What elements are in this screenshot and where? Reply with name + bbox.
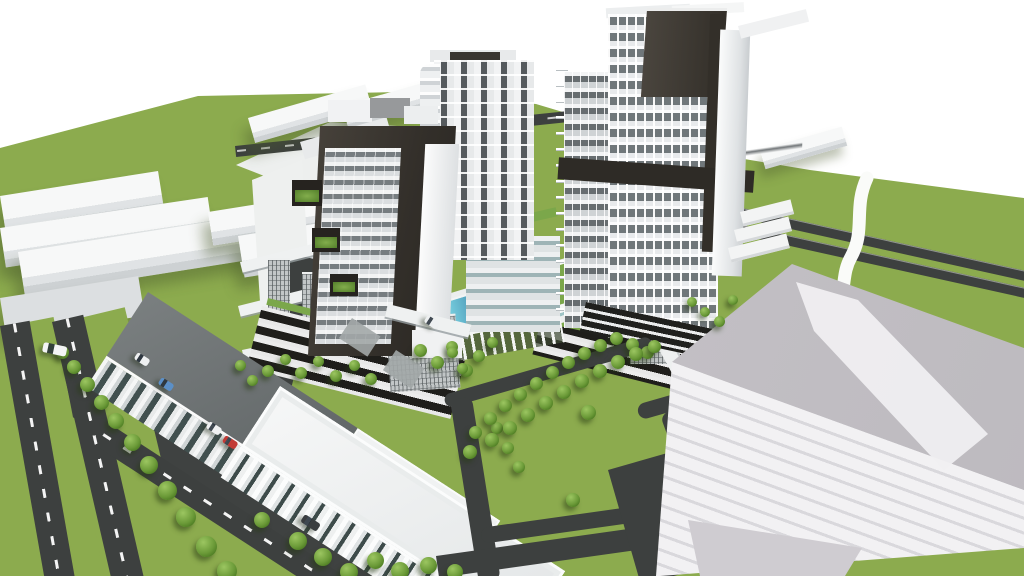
tree — [67, 360, 81, 374]
tree — [566, 493, 580, 507]
tree — [247, 375, 258, 386]
tree — [124, 434, 141, 451]
tree — [581, 405, 596, 420]
tree — [469, 426, 482, 439]
tree — [235, 360, 246, 371]
tree — [80, 377, 95, 392]
tree — [473, 350, 485, 362]
tower-left-roof-block — [404, 106, 438, 124]
tree — [176, 507, 196, 527]
tree — [349, 360, 360, 371]
tree — [463, 445, 477, 459]
tree — [648, 340, 661, 353]
tree — [485, 433, 499, 447]
tree — [420, 557, 437, 574]
tree — [217, 561, 237, 576]
tree — [629, 347, 643, 361]
tree — [262, 365, 274, 377]
tree — [503, 421, 517, 435]
sky-terrace — [330, 274, 358, 296]
tree — [447, 564, 463, 576]
tree — [94, 395, 109, 410]
tree — [562, 356, 575, 369]
tree — [539, 396, 553, 410]
tree — [431, 356, 444, 369]
tree — [367, 552, 384, 569]
tree — [365, 373, 377, 385]
tree — [313, 356, 324, 367]
tree — [487, 337, 498, 348]
tree — [521, 408, 535, 422]
tree — [728, 295, 738, 305]
tree — [314, 548, 332, 566]
tree — [700, 307, 710, 317]
tree — [575, 374, 589, 388]
tree — [513, 461, 525, 473]
tree — [499, 399, 512, 412]
tower-right — [556, 6, 756, 340]
tree — [330, 370, 342, 382]
tree — [158, 481, 177, 500]
tree — [447, 347, 458, 358]
tree — [391, 562, 409, 576]
tree — [514, 388, 527, 401]
tree — [414, 344, 427, 357]
tree — [546, 366, 559, 379]
tree — [295, 367, 307, 379]
tree — [340, 563, 358, 576]
tree — [593, 364, 607, 378]
tree — [254, 512, 270, 528]
tower-center-roof-plant — [450, 52, 500, 60]
tree — [557, 385, 571, 399]
tree — [196, 536, 217, 557]
tree — [687, 297, 697, 307]
tree — [502, 442, 514, 454]
tree — [594, 339, 607, 352]
tower-left-roof-block — [328, 100, 372, 122]
architectural-render-viewport — [0, 0, 1024, 576]
sky-terrace — [292, 180, 322, 206]
tree — [280, 354, 291, 365]
tree — [714, 316, 725, 327]
sky-terrace-planting — [315, 237, 337, 248]
tree — [611, 355, 625, 369]
tree — [140, 456, 158, 474]
sky-terrace-planting — [295, 190, 319, 202]
tree — [457, 363, 468, 374]
sky-terrace — [312, 228, 340, 252]
tree — [289, 532, 307, 550]
tree — [108, 413, 124, 429]
tree — [530, 377, 543, 390]
sky-terrace-planting — [333, 282, 355, 292]
tree — [610, 332, 623, 345]
tree — [578, 347, 591, 360]
tree — [484, 412, 497, 425]
